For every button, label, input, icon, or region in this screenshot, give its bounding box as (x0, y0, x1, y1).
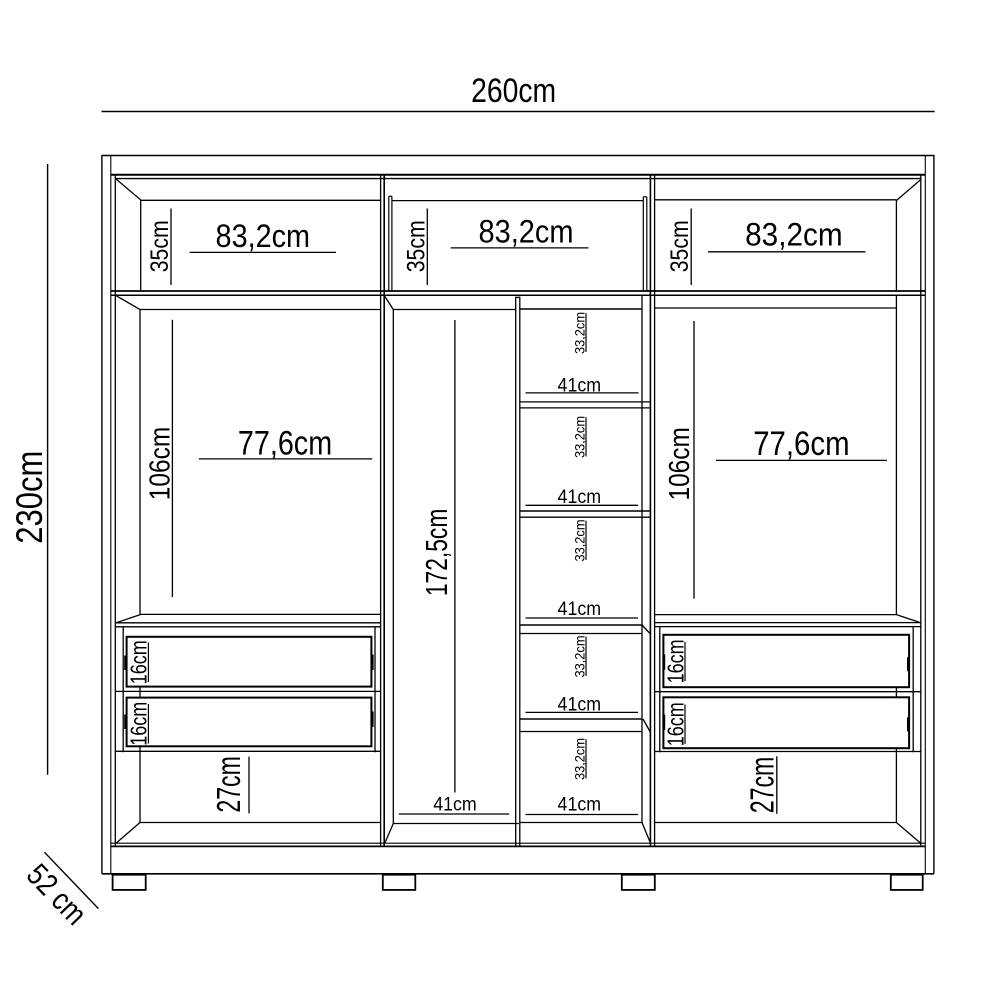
svg-text:83,2cm: 83,2cm (216, 218, 311, 254)
svg-text:260cm: 260cm (471, 72, 556, 110)
svg-text:35cm: 35cm (666, 220, 694, 272)
svg-text:33,2cm: 33,2cm (571, 520, 587, 562)
svg-text:106cm: 106cm (664, 427, 696, 501)
svg-text:41cm: 41cm (558, 375, 602, 397)
svg-text:106cm: 106cm (145, 427, 177, 501)
svg-text:77,6cm: 77,6cm (238, 425, 332, 463)
svg-text:33,2cm: 33,2cm (571, 636, 587, 678)
svg-text:35cm: 35cm (146, 220, 174, 272)
svg-text:16cm: 16cm (662, 702, 688, 746)
svg-text:16cm: 16cm (126, 640, 152, 684)
svg-text:41cm: 41cm (558, 598, 602, 620)
svg-text:35cm: 35cm (402, 220, 430, 272)
svg-text:77,6cm: 77,6cm (753, 425, 849, 463)
svg-text:33,2cm: 33,2cm (571, 312, 587, 354)
svg-text:33,2cm: 33,2cm (571, 416, 587, 458)
svg-text:33,2cm: 33,2cm (571, 738, 587, 780)
svg-text:16cm: 16cm (126, 702, 152, 746)
svg-text:41cm: 41cm (433, 794, 477, 816)
svg-text:16cm: 16cm (662, 639, 688, 683)
svg-text:41cm: 41cm (558, 486, 602, 508)
svg-text:27cm: 27cm (744, 757, 781, 814)
svg-text:230cm: 230cm (9, 451, 50, 544)
svg-text:27cm: 27cm (210, 756, 247, 813)
svg-text:172,5cm: 172,5cm (419, 509, 454, 597)
svg-text:41cm: 41cm (558, 793, 602, 815)
svg-text:83,2cm: 83,2cm (745, 216, 843, 252)
svg-text:83,2cm: 83,2cm (479, 214, 574, 250)
svg-text:41cm: 41cm (558, 694, 602, 716)
